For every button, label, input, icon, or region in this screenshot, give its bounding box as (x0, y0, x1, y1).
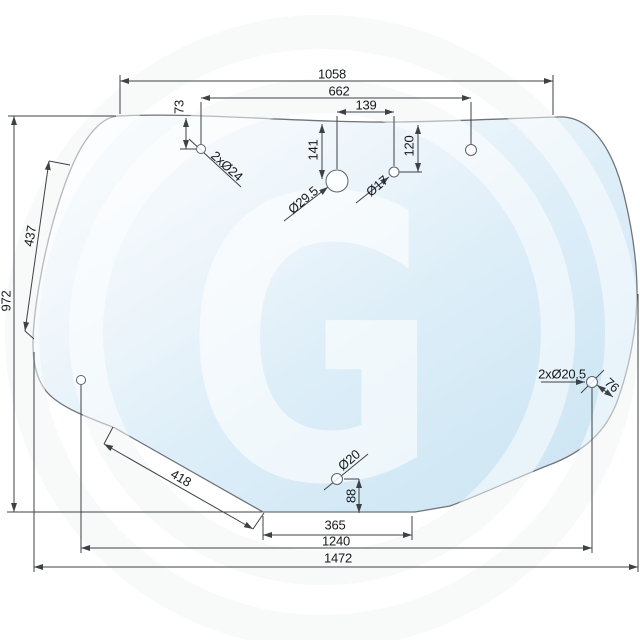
dim-label-center-hole-gap: 139 (355, 99, 376, 112)
dim-label-big-hole-drop: 141 (307, 139, 320, 160)
hole-top-right (466, 145, 477, 156)
hole-bottom-left (77, 376, 86, 385)
hole-side-right (587, 377, 598, 388)
dim-label-top-width: 1058 (318, 68, 346, 81)
hole-bottom-center (332, 474, 343, 485)
hole-center-big (326, 170, 348, 192)
dim-label-overall-width: 1472 (324, 552, 352, 565)
drawing-canvas: G (0, 0, 640, 640)
dim-label-bottom-hole-span: 1240 (322, 535, 350, 548)
technical-drawing: G (0, 0, 640, 640)
dim-label-left-upper-edge: 437 (22, 224, 38, 247)
hole-center-small (389, 167, 399, 177)
dim-label-top-hole-drop: 73 (173, 100, 186, 114)
dim-label-bottom-edge: 365 (324, 519, 345, 532)
dim-label-top-hole-span: 662 (328, 85, 349, 98)
dim-label-side-hole-dia: 2xØ20.5 (538, 368, 586, 381)
hole-top-left (197, 145, 206, 154)
dim-label-overall-height: 972 (0, 290, 13, 311)
dim-label-bottom-hole-rise: 88 (345, 489, 358, 503)
dim-label-small-hole-drop: 120 (403, 135, 416, 156)
